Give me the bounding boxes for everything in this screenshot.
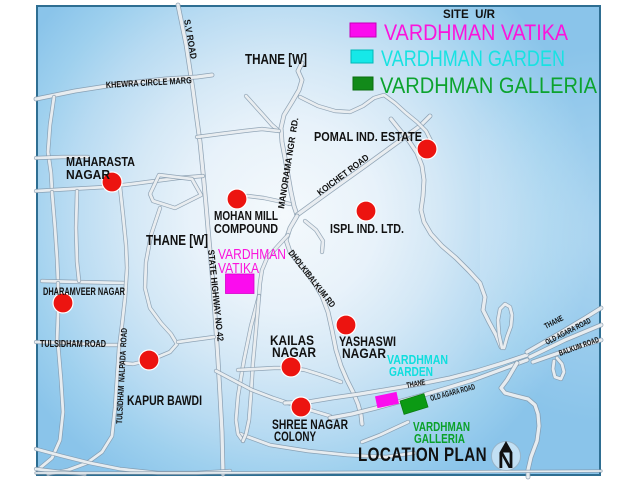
svg-text:SITE U/R: SITE U/R [443,7,495,21]
svg-text:THANE [W]: THANE [W] [245,51,307,68]
svg-text:COLONY: COLONY [274,429,316,444]
svg-text:DHARAMVEER NAGAR: DHARAMVEER NAGAR [43,286,125,298]
svg-text:NAGAR: NAGAR [272,345,316,360]
svg-text:POMAL IND. ESTATE: POMAL IND. ESTATE [314,129,422,144]
svg-text:NAGAR: NAGAR [342,346,386,361]
svg-text:TULSIDHAM ROAD: TULSIDHAM ROAD [40,338,106,350]
svg-text:NAGAR: NAGAR [66,167,111,182]
svg-text:KAPUR BAWDI: KAPUR BAWDI [127,393,202,408]
svg-text:LOCATION PLAN: LOCATION PLAN [358,444,487,466]
svg-text:THANE [W]: THANE [W] [146,232,208,249]
svg-text:VARDHMAN GARDEN: VARDHMAN GARDEN [381,46,565,71]
svg-text:VATIKA: VATIKA [218,260,259,277]
svg-text:N: N [498,448,514,473]
svg-text:VARDHMAN VATIKA: VARDHMAN VATIKA [384,20,568,45]
svg-text:COMPOUND: COMPOUND [214,221,278,236]
svg-text:GARDEN: GARDEN [389,365,433,379]
svg-text:VARDHMAN GALLERIA: VARDHMAN GALLERIA [380,73,597,98]
svg-text:ISPL IND. LTD.: ISPL IND. LTD. [330,221,404,236]
